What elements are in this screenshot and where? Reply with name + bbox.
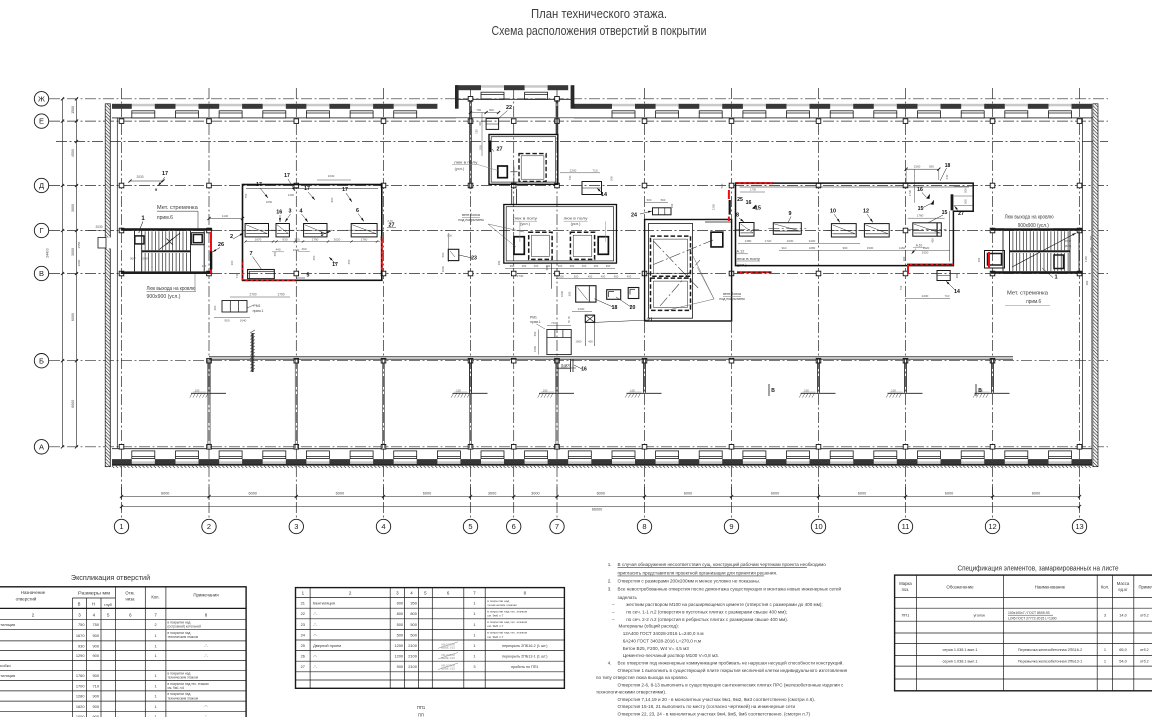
svg-text:1730: 1730 bbox=[908, 189, 912, 196]
svg-text:500: 500 bbox=[410, 622, 417, 627]
svg-text:100: 100 bbox=[195, 388, 200, 392]
svg-text:ентиляция: ентиляция bbox=[0, 673, 15, 678]
svg-text:А: А bbox=[39, 442, 44, 451]
svg-text:6000: 6000 bbox=[858, 491, 866, 495]
svg-text:Цементно-песчаный раствор М100: Цементно-песчаный раствор М100 V=0,8 м3. bbox=[623, 652, 719, 658]
svg-text:Отм.: Отм. bbox=[125, 591, 134, 596]
svg-text:6000: 6000 bbox=[945, 491, 953, 495]
svg-text:1460: 1460 bbox=[288, 193, 295, 197]
svg-text:23: 23 bbox=[301, 622, 305, 627]
svg-text:17: 17 bbox=[342, 187, 348, 193]
svg-text:техническим этажом: техническим этажом bbox=[168, 635, 198, 639]
svg-text:ентиляция: ентиляция bbox=[0, 622, 15, 627]
svg-text:400: 400 bbox=[601, 274, 606, 278]
svg-text:Схема расположения отверстий в: Схема расположения отверстий в покрытии bbox=[492, 24, 707, 38]
svg-text:900: 900 bbox=[93, 643, 100, 648]
svg-text:130: 130 bbox=[202, 264, 207, 268]
svg-text:450: 450 bbox=[588, 274, 593, 278]
svg-text:ПП: ПП bbox=[418, 713, 424, 718]
svg-text:500: 500 bbox=[397, 622, 404, 627]
svg-text:500: 500 bbox=[441, 252, 445, 257]
svg-text:100: 100 bbox=[891, 388, 896, 392]
svg-text:1730: 1730 bbox=[750, 188, 757, 192]
svg-text:100: 100 bbox=[630, 388, 635, 392]
svg-text:2030: 2030 bbox=[95, 225, 102, 229]
svg-text:900: 900 bbox=[93, 704, 100, 709]
svg-text:люк в полу: люк в полу bbox=[454, 160, 478, 164]
svg-text:1: 1 bbox=[119, 522, 123, 531]
svg-text:технологическими отверстиями).: технологическими отверстиями). bbox=[596, 690, 666, 695]
svg-text:Е: Е bbox=[39, 117, 44, 126]
svg-text:ВыБЕ 1/15: ВыБЕ 1/15 bbox=[441, 646, 455, 650]
svg-text:-"-: -"- bbox=[313, 664, 318, 669]
svg-text:360: 360 bbox=[1085, 280, 1089, 285]
svg-text:техническим этажом: техническим этажом bbox=[168, 696, 198, 700]
svg-text:серия 1.038.1 вып.1: серия 1.038.1 вып.1 bbox=[942, 659, 977, 663]
svg-text:100: 100 bbox=[543, 388, 548, 392]
svg-text:650: 650 bbox=[929, 165, 934, 169]
svg-text:710: 710 bbox=[235, 273, 239, 278]
svg-text:470: 470 bbox=[379, 235, 383, 240]
svg-text:3000: 3000 bbox=[71, 248, 75, 256]
svg-text:см. 9м5 л.7: см. 9м5 л.7 bbox=[487, 624, 503, 628]
svg-text:900*: 900* bbox=[130, 257, 137, 261]
svg-text:54,0: 54,0 bbox=[1119, 658, 1127, 663]
svg-text:3000: 3000 bbox=[77, 259, 81, 266]
svg-text:750: 750 bbox=[244, 193, 248, 198]
svg-text:500: 500 bbox=[397, 632, 404, 637]
svg-text:1900: 1900 bbox=[575, 340, 582, 344]
svg-text:2030: 2030 bbox=[136, 175, 143, 179]
svg-text:16: 16 bbox=[276, 210, 282, 216]
svg-text:450: 450 bbox=[312, 255, 316, 260]
svg-text:под покрытием: под покрытием bbox=[458, 218, 484, 222]
svg-text:1: 1 bbox=[155, 633, 157, 638]
svg-text:1000: 1000 bbox=[560, 291, 564, 297]
svg-text:-"-: -"- bbox=[313, 611, 318, 616]
svg-text:1050: 1050 bbox=[266, 200, 273, 204]
svg-text:Мет. стремянка: Мет. стремянка bbox=[157, 205, 198, 211]
svg-text:Размеры мм: Размеры мм bbox=[78, 591, 110, 596]
svg-text:глуб: глуб bbox=[104, 603, 112, 607]
svg-text:6000: 6000 bbox=[336, 491, 344, 495]
svg-text:4.: 4. bbox=[608, 661, 612, 666]
svg-text:600: 600 bbox=[1089, 247, 1093, 252]
svg-text:1: 1 bbox=[473, 601, 475, 606]
svg-text:1640: 1640 bbox=[328, 174, 335, 178]
svg-text:бособко: бособко bbox=[0, 663, 11, 668]
svg-text:1700: 1700 bbox=[76, 683, 85, 688]
svg-text:730: 730 bbox=[568, 175, 572, 180]
svg-text:1502: 1502 bbox=[1065, 239, 1072, 243]
svg-text:12А400 ГОСТ 34028-2016 L=24: 12А400 ГОСТ 34028-2016 L=240,0 п.м bbox=[623, 631, 704, 636]
svg-text:6: 6 bbox=[512, 522, 516, 531]
svg-text:Люк выхода на кровлю: Люк выхода на кровлю bbox=[147, 286, 196, 292]
svg-text:Все отверстия под инженерные к: Все отверстия под инженерные коммуникаци… bbox=[618, 660, 844, 666]
svg-text:3: 3 bbox=[473, 664, 475, 669]
svg-text:18: 18 bbox=[612, 305, 618, 311]
svg-text:1720: 1720 bbox=[765, 239, 772, 243]
svg-text:17: 17 bbox=[284, 173, 290, 179]
svg-text:3000: 3000 bbox=[71, 204, 75, 212]
svg-text:1: 1 bbox=[155, 683, 157, 688]
svg-text:22: 22 bbox=[506, 105, 512, 111]
svg-text:1200: 1200 bbox=[394, 654, 403, 659]
svg-text:1300: 1300 bbox=[712, 203, 716, 210]
svg-text:800: 800 bbox=[397, 611, 404, 616]
svg-text:16: 16 bbox=[746, 200, 752, 206]
svg-text:1: 1 bbox=[473, 622, 475, 627]
svg-text:7: 7 bbox=[249, 251, 252, 257]
svg-text:400: 400 bbox=[627, 274, 632, 278]
svg-text:1380: 1380 bbox=[745, 239, 752, 243]
svg-text:А.12: А.12 bbox=[737, 250, 745, 254]
svg-text:Экспликация отверстий: Экспликация отверстий bbox=[71, 573, 150, 582]
svg-text:Перемычка железобетонная 2ПБ13: Перемычка железобетонная 2ПБ13-1 bbox=[1018, 659, 1082, 663]
svg-text:1: 1 bbox=[155, 673, 157, 678]
svg-text:13: 13 bbox=[1075, 522, 1083, 531]
svg-text:3: 3 bbox=[294, 522, 298, 531]
svg-text:18: 18 bbox=[945, 163, 951, 169]
svg-text:3000: 3000 bbox=[531, 491, 539, 495]
svg-text:отб.2: отб.2 bbox=[1140, 659, 1149, 663]
svg-text:перекрыть 2ПБ13-1 (1 шт.): перекрыть 2ПБ13-1 (1 шт.) bbox=[502, 655, 547, 659]
svg-text:22: 22 bbox=[301, 611, 305, 616]
svg-text:–: – bbox=[612, 617, 615, 622]
svg-text:В: В bbox=[978, 388, 982, 394]
svg-text:600: 600 bbox=[397, 601, 404, 606]
svg-text:950: 950 bbox=[224, 319, 229, 323]
svg-text:1500: 1500 bbox=[533, 346, 537, 352]
svg-text:1790: 1790 bbox=[312, 237, 319, 241]
svg-text:Д: Д bbox=[39, 181, 44, 190]
svg-text:6000: 6000 bbox=[771, 491, 779, 495]
svg-text:6000: 6000 bbox=[161, 491, 169, 495]
svg-text:8: 8 bbox=[642, 522, 646, 531]
svg-text:1620: 1620 bbox=[76, 704, 85, 709]
svg-text:уголок: уголок bbox=[973, 612, 985, 617]
svg-text:1290: 1290 bbox=[76, 653, 85, 658]
svg-text:Примечания: Примечания bbox=[193, 593, 219, 598]
svg-text:450: 450 bbox=[347, 259, 351, 264]
svg-text:450: 450 bbox=[594, 264, 599, 268]
svg-text:Отверстия 2-6, 8-13 выполнить: Отверстия 2-6, 8-13 выполнить в существу… bbox=[618, 682, 845, 687]
svg-text:Масса: Масса bbox=[1117, 581, 1130, 586]
svg-text:см. 9м6 л.7: см. 9м6 л.7 bbox=[487, 635, 503, 639]
svg-text:5: 5 bbox=[468, 522, 472, 531]
svg-text:Отверстие 1 выполнить в сущест: Отверстие 1 выполнить в существующей пли… bbox=[618, 667, 848, 673]
svg-text:12: 12 bbox=[863, 209, 869, 215]
svg-text:250: 250 bbox=[977, 257, 981, 262]
svg-text:Люк выхода на кровлю: Люк выхода на кровлю bbox=[1005, 215, 1054, 221]
svg-text:жестким раствором М100 на расш: жестким раствором М100 на расширяющемся … bbox=[626, 602, 823, 607]
svg-text:Все невостребованные отверстия: Все невостребованные отверстия после дем… bbox=[618, 586, 842, 592]
svg-text:Вентиляция: Вентиляция bbox=[313, 601, 335, 606]
svg-text:230: 230 bbox=[945, 174, 949, 179]
svg-text:прим.1: прим.1 bbox=[530, 320, 541, 324]
svg-text:500: 500 bbox=[720, 183, 724, 188]
svg-text:низа: низа bbox=[126, 597, 136, 602]
svg-text:900х900 (усл.): 900х900 (усл.) bbox=[1018, 223, 1049, 229]
svg-text:по типу отверстия люка выхода: по типу отверстия люка выхода на кровлю. bbox=[596, 675, 688, 680]
svg-text:16: 16 bbox=[581, 367, 587, 373]
svg-text:отб.2: отб.2 bbox=[1140, 648, 1149, 652]
svg-text:2700: 2700 bbox=[249, 293, 256, 297]
svg-text:ПП1: ПП1 bbox=[902, 612, 910, 617]
svg-text:1: 1 bbox=[473, 632, 475, 637]
svg-text:27: 27 bbox=[301, 664, 305, 669]
svg-text:900: 900 bbox=[93, 653, 100, 658]
svg-text:150: 150 bbox=[475, 129, 479, 134]
svg-text:450: 450 bbox=[533, 331, 537, 336]
svg-text:750: 750 bbox=[78, 622, 85, 627]
svg-text:500: 500 bbox=[479, 145, 483, 150]
svg-text:6000: 6000 bbox=[71, 400, 75, 408]
svg-text:400: 400 bbox=[213, 305, 217, 310]
svg-text:900: 900 bbox=[964, 188, 968, 193]
svg-text:990: 990 bbox=[510, 264, 515, 268]
svg-text:пробить по ПП1: пробить по ПП1 bbox=[511, 665, 538, 669]
svg-text:1: 1 bbox=[155, 653, 157, 658]
svg-text:700: 700 bbox=[476, 108, 481, 112]
svg-text:1: 1 bbox=[155, 704, 157, 709]
svg-text:1780: 1780 bbox=[917, 213, 924, 217]
svg-text:1640: 1640 bbox=[240, 319, 247, 323]
svg-text:25: 25 bbox=[301, 643, 305, 648]
svg-text:710: 710 bbox=[592, 168, 597, 172]
svg-text:710: 710 bbox=[551, 321, 556, 325]
svg-text:2550: 2550 bbox=[77, 241, 81, 248]
svg-text:6000: 6000 bbox=[423, 491, 431, 495]
svg-text:600: 600 bbox=[647, 198, 652, 202]
svg-text:люк в полу: люк в полу bbox=[564, 216, 588, 221]
svg-text:900: 900 bbox=[397, 664, 404, 669]
svg-text:17: 17 bbox=[304, 186, 310, 192]
svg-text:В: В bbox=[39, 269, 44, 278]
svg-text:500: 500 bbox=[447, 233, 452, 237]
svg-text:300: 300 bbox=[497, 260, 501, 265]
svg-text:450: 450 bbox=[546, 264, 551, 268]
svg-text:1: 1 bbox=[155, 643, 157, 648]
svg-text:РМ1: РМ1 bbox=[530, 316, 537, 320]
svg-text:400: 400 bbox=[478, 121, 482, 126]
svg-text:1: 1 bbox=[155, 694, 157, 699]
svg-text:65,0: 65,0 bbox=[1119, 647, 1127, 652]
svg-text:отверстий: отверстий bbox=[16, 597, 37, 602]
svg-text:ВыБЕ 1/15: ВыБЕ 1/15 bbox=[441, 656, 455, 660]
svg-text:21: 21 bbox=[301, 601, 305, 606]
svg-text:Ж: Ж bbox=[38, 94, 45, 103]
svg-text:Кол.: Кол. bbox=[1101, 585, 1109, 590]
svg-text:150: 150 bbox=[670, 203, 674, 208]
svg-text:см. 9м6 л.7: см. 9м6 л.7 bbox=[487, 614, 503, 618]
svg-text:Б: Б bbox=[39, 356, 44, 365]
svg-text:1: 1 bbox=[473, 654, 475, 659]
svg-text:17: 17 bbox=[162, 171, 168, 177]
svg-text:люк в полу: люк в полу bbox=[737, 257, 761, 261]
svg-text:1500: 1500 bbox=[71, 106, 75, 114]
svg-text:5: 5 bbox=[307, 273, 310, 279]
svg-text:перекрыть 2ПБ16-2 (1 шт.): перекрыть 2ПБ16-2 (1 шт.) bbox=[502, 644, 547, 648]
svg-text:1730: 1730 bbox=[517, 274, 524, 278]
svg-text:отб.2: отб.2 bbox=[1140, 613, 1149, 617]
svg-text:900: 900 bbox=[93, 673, 100, 678]
svg-text:450: 450 bbox=[273, 251, 277, 256]
svg-text:1640: 1640 bbox=[293, 248, 300, 252]
svg-text:1630: 1630 bbox=[787, 239, 794, 243]
svg-text:1160: 1160 bbox=[899, 246, 906, 250]
svg-text:710: 710 bbox=[945, 294, 950, 298]
svg-text:930: 930 bbox=[282, 237, 287, 241]
svg-text:4500: 4500 bbox=[71, 149, 75, 157]
svg-text:23: 23 bbox=[471, 256, 477, 262]
svg-text:пригласить представителя проек: пригласить представителя проектной орган… bbox=[618, 569, 778, 575]
svg-text:8: 8 bbox=[736, 213, 739, 219]
svg-text:1080: 1080 bbox=[809, 246, 816, 250]
svg-text:280: 280 bbox=[902, 256, 906, 261]
svg-text:Отверстия 22, 23, 24 - в моно: Отверстия 22, 23, 24 - в монолитных учас… bbox=[618, 711, 811, 716]
svg-text:25: 25 bbox=[737, 197, 743, 203]
svg-text:1: 1 bbox=[1104, 647, 1106, 652]
svg-text:ВыБЕ 1/15: ВыБЕ 1/15 bbox=[441, 667, 455, 671]
svg-text:заделать: заделать bbox=[618, 595, 638, 600]
svg-text:750: 750 bbox=[1089, 235, 1093, 240]
svg-text:Дверной проем: Дверной проем bbox=[313, 643, 341, 648]
svg-text:прим.6: прим.6 bbox=[1026, 299, 1041, 305]
svg-text:27: 27 bbox=[497, 147, 503, 153]
svg-text:440: 440 bbox=[275, 248, 280, 252]
svg-text:Отверстия 7,14,19 и 20 - в мон: Отверстия 7,14,19 и 20 - в монолитных уч… bbox=[618, 697, 816, 702]
svg-text:Примеч: Примеч bbox=[1139, 585, 1152, 590]
svg-text:2100: 2100 bbox=[408, 654, 417, 659]
svg-text:100х100х7 / ГОСТ 8509-93: 100х100х7 / ГОСТ 8509-93 bbox=[1008, 611, 1050, 615]
svg-text:990: 990 bbox=[606, 264, 611, 268]
svg-text:6: 6 bbox=[356, 208, 359, 214]
svg-text:710: 710 bbox=[899, 285, 903, 290]
svg-text:Марка: Марка bbox=[899, 581, 912, 586]
svg-text:710: 710 bbox=[93, 683, 100, 688]
svg-text:400: 400 bbox=[534, 264, 539, 268]
svg-text:Обозначение: Обозначение bbox=[946, 585, 974, 590]
svg-text:14,0: 14,0 bbox=[1119, 612, 1127, 617]
svg-text:2: 2 bbox=[155, 622, 157, 627]
svg-text:6А240 ГОСТ 34028-2016 L=270: 6А240 ГОСТ 34028-2016 L=270,0 п.м bbox=[623, 638, 701, 643]
svg-text:26: 26 bbox=[218, 242, 224, 248]
svg-text:1280: 1280 bbox=[76, 694, 85, 699]
svg-text:17: 17 bbox=[256, 182, 262, 188]
svg-text:2200: 2200 bbox=[570, 168, 577, 172]
svg-text:905: 905 bbox=[964, 199, 968, 204]
svg-text:1150: 1150 bbox=[1084, 256, 1088, 262]
svg-text:1500: 1500 bbox=[867, 246, 874, 250]
svg-text:см. 9м1 л.6: см. 9м1 л.6 bbox=[168, 686, 185, 690]
svg-text:3400: 3400 bbox=[809, 239, 816, 243]
svg-text:ПП1: ПП1 bbox=[417, 705, 426, 710]
svg-text:900: 900 bbox=[93, 633, 100, 638]
svg-text:2.: 2. bbox=[608, 579, 612, 584]
svg-text:В: В bbox=[771, 388, 775, 394]
svg-text:2200: 2200 bbox=[578, 307, 585, 311]
svg-text:450: 450 bbox=[570, 264, 575, 268]
svg-text:1: 1 bbox=[473, 611, 475, 616]
svg-text:А.10: А.10 bbox=[916, 243, 923, 247]
svg-text:500: 500 bbox=[661, 198, 666, 202]
svg-text:L245 ГОСТ 27772-2015 L=1300: L245 ГОСТ 27772-2015 L=1300 bbox=[1008, 616, 1057, 620]
svg-text:(800): (800) bbox=[1065, 244, 1072, 248]
svg-text:800: 800 bbox=[410, 611, 417, 616]
svg-text:9: 9 bbox=[729, 522, 733, 531]
svg-text:450: 450 bbox=[931, 238, 935, 243]
svg-text:поз.: поз. bbox=[902, 587, 910, 592]
svg-text:5: 5 bbox=[321, 232, 324, 238]
svg-text:(усл.): (усл.) bbox=[520, 221, 530, 226]
svg-text:26: 26 bbox=[301, 654, 305, 659]
svg-text:Н: Н bbox=[92, 602, 95, 607]
svg-text:4: 4 bbox=[300, 209, 303, 215]
svg-text:500: 500 bbox=[574, 274, 579, 278]
svg-text:10: 10 bbox=[814, 522, 822, 531]
svg-text:9: 9 bbox=[789, 211, 792, 217]
svg-text:1670: 1670 bbox=[76, 633, 85, 638]
svg-text:100: 100 bbox=[456, 388, 461, 392]
svg-text:В: В bbox=[78, 602, 81, 607]
svg-text:–: – bbox=[612, 610, 615, 615]
svg-text:3000: 3000 bbox=[488, 491, 496, 495]
svg-text:Г: Г bbox=[39, 226, 43, 235]
svg-text:1760: 1760 bbox=[76, 673, 85, 678]
svg-text:500: 500 bbox=[568, 291, 572, 296]
svg-text:по сеч. 1-1 л.2 (отверстия в: по сеч. 1-1 л.2 (отверстия в пустотных п… bbox=[626, 610, 787, 615]
svg-text:2100: 2100 bbox=[408, 664, 417, 669]
svg-text:(островной) котельной: (островной) котельной bbox=[168, 625, 202, 629]
svg-text:РМ1: РМ1 bbox=[254, 304, 261, 308]
svg-text:16: 16 bbox=[917, 187, 923, 193]
svg-text:1800: 1800 bbox=[441, 265, 445, 272]
svg-text:Кол.: Кол. bbox=[151, 595, 159, 600]
svg-text:2100: 2100 bbox=[408, 643, 417, 648]
svg-text:люк в полу: люк в полу bbox=[513, 216, 537, 221]
svg-text:1: 1 bbox=[473, 643, 475, 648]
svg-text:вент.болка: вент.болка bbox=[723, 292, 741, 296]
svg-text:450: 450 bbox=[614, 274, 619, 278]
svg-text:3: 3 bbox=[1104, 612, 1106, 617]
svg-text:15: 15 bbox=[918, 206, 924, 212]
svg-text:11: 11 bbox=[902, 522, 910, 531]
svg-text:Назначение: Назначение bbox=[21, 590, 46, 595]
svg-text:12: 12 bbox=[988, 522, 996, 531]
svg-text:100: 100 bbox=[230, 260, 234, 265]
svg-text:500: 500 bbox=[610, 176, 614, 181]
svg-text:Спецификация элементов, замарк: Спецификация элементов, замаркированных … bbox=[958, 566, 1119, 573]
svg-text:Бетон В25, F200, W4 V=: Бетон В25, F200, W4 V= 4,5 м3 bbox=[623, 646, 690, 651]
svg-text:6000: 6000 bbox=[597, 491, 605, 495]
svg-text:План технического этажа.: План технического этажа. bbox=[531, 7, 667, 21]
svg-text:Отверстия 15-18, 21 выполнить: Отверстия 15-18, 21 выполнить по месту (… bbox=[618, 703, 796, 709]
svg-text:1700: 1700 bbox=[277, 293, 284, 297]
svg-text:450: 450 bbox=[522, 264, 527, 268]
svg-text:1200: 1200 bbox=[394, 643, 403, 648]
svg-text:Перемычка железобетонная 2ПБ16: Перемычка железобетонная 2ПБ16-2 bbox=[1018, 648, 1082, 652]
svg-text:2: 2 bbox=[207, 522, 211, 531]
svg-text:–: – bbox=[612, 602, 615, 607]
svg-text:2200: 2200 bbox=[922, 294, 929, 298]
svg-text:техническим этажом: техническим этажом bbox=[487, 603, 517, 607]
svg-text:Отверстия с размерами 200х200м: Отверстия с размерами 200х200мм и менее … bbox=[618, 579, 761, 584]
svg-text:24: 24 bbox=[631, 213, 637, 219]
svg-text:Мет. стремянка: Мет. стремянка bbox=[1007, 291, 1048, 297]
svg-text:прим.1: прим.1 bbox=[253, 309, 264, 313]
svg-text:350: 350 bbox=[410, 601, 417, 606]
